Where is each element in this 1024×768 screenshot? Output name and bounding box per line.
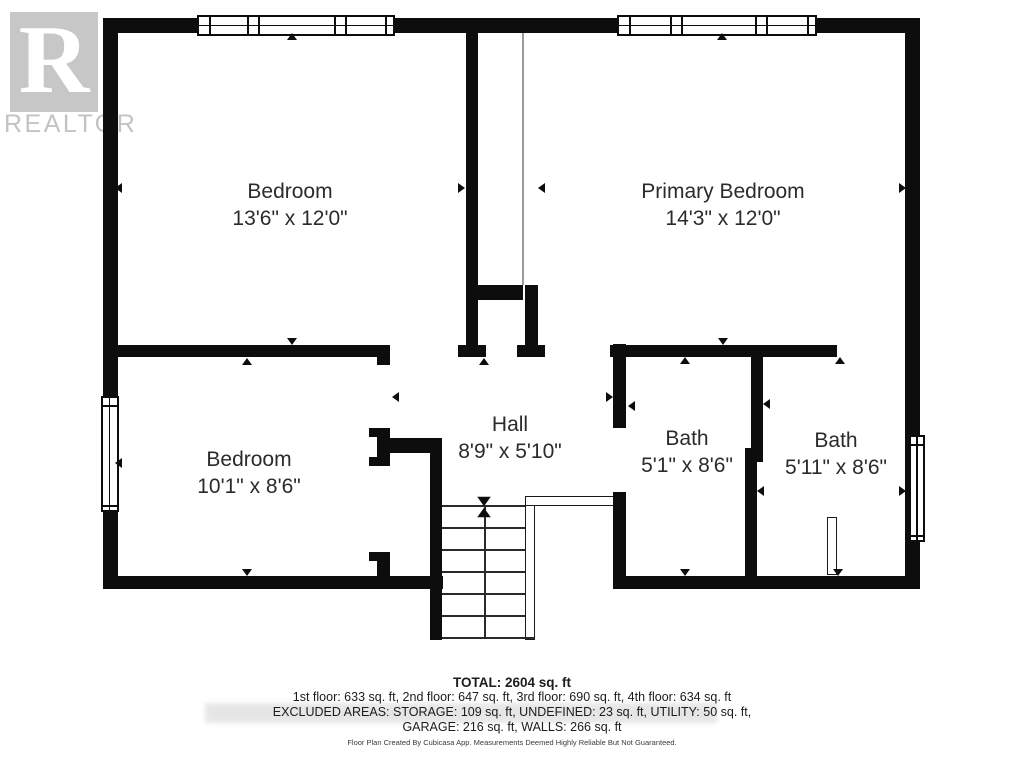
direction-marker: [115, 458, 122, 468]
room-name: Primary Bedroom: [641, 178, 804, 205]
room-label: Bedroom13'6" x 12'0": [232, 178, 347, 232]
summary-floors: 1st floor: 633 sq. ft, 2nd floor: 647 sq…: [0, 690, 1024, 705]
realtor-logo: R: [10, 12, 98, 112]
direction-marker: [833, 569, 843, 576]
room-label: Hall8'9" x 5'10": [458, 411, 562, 465]
room-label: Bath5'11" x 8'6": [785, 427, 887, 481]
direction-marker: [628, 401, 635, 411]
direction-marker: [899, 183, 906, 193]
wall-segment: [369, 457, 378, 466]
direction-marker: [757, 486, 764, 496]
direction-marker: [680, 569, 690, 576]
room-name: Bath: [641, 425, 733, 452]
area-summary: TOTAL: 2604 sq. ft 1st floor: 633 sq. ft…: [0, 675, 1024, 747]
wall-segment: [613, 576, 920, 589]
room-dimensions: 14'3" x 12'0": [641, 205, 804, 232]
stair-center-line: [484, 505, 486, 637]
floor-plan-canvas: Bedroom13'6" x 12'0"Primary Bedroom14'3"…: [0, 0, 1024, 768]
direction-marker: [717, 33, 727, 40]
direction-marker: [899, 486, 906, 496]
room-dimensions: 8'9" x 5'10": [458, 438, 562, 465]
direction-marker: [477, 496, 491, 505]
direction-marker: [538, 183, 545, 193]
room-label: Bath5'1" x 8'6": [641, 425, 733, 479]
wall-segment: [613, 344, 626, 428]
room-label: Primary Bedroom14'3" x 12'0": [641, 178, 804, 232]
window: [101, 396, 119, 512]
direction-marker: [287, 33, 297, 40]
room-name: Bedroom: [232, 178, 347, 205]
wall-segment: [458, 345, 486, 357]
stair-railing: [525, 496, 535, 640]
summary-total: TOTAL: 2604 sq. ft: [0, 675, 1024, 690]
room-dimensions: 5'11" x 8'6": [785, 454, 887, 481]
stair-tread: [442, 637, 535, 639]
wall-segment: [613, 492, 626, 588]
wall-segment: [517, 345, 545, 357]
wall-segment: [103, 345, 390, 357]
direction-marker: [115, 183, 122, 193]
direction-marker: [392, 392, 399, 402]
room-dimensions: 5'1" x 8'6": [641, 452, 733, 479]
wall-segment: [525, 285, 538, 345]
room-label: Bedroom10'1" x 8'6": [197, 446, 301, 500]
wall-segment: [745, 452, 757, 576]
direction-marker: [477, 507, 491, 516]
direction-marker: [479, 358, 489, 365]
direction-marker: [718, 338, 728, 345]
stair-railing: [525, 496, 618, 506]
room-name: Bath: [785, 427, 887, 454]
direction-marker: [242, 358, 252, 365]
door-leaf: [827, 517, 837, 575]
room-divider-line: [522, 33, 524, 285]
wall-segment: [610, 345, 837, 357]
room-dimensions: 10'1" x 8'6": [197, 473, 301, 500]
realtor-logo-letter: R: [19, 6, 90, 114]
window: [909, 435, 925, 542]
wall-segment: [377, 552, 390, 576]
room-name: Bedroom: [197, 446, 301, 473]
wall-segment: [751, 345, 763, 454]
wall-segment: [369, 428, 378, 437]
summary-disclaimer: Floor Plan Created By Cubicasa App. Meas…: [0, 738, 1024, 747]
direction-marker: [458, 183, 465, 193]
wall-segment: [103, 576, 443, 589]
direction-marker: [763, 399, 770, 409]
wall-segment: [377, 345, 390, 365]
wall-segment: [430, 438, 442, 640]
direction-marker: [835, 357, 845, 364]
direction-marker: [680, 357, 690, 364]
direction-marker: [606, 392, 613, 402]
wall-segment: [472, 285, 523, 300]
room-dimensions: 13'6" x 12'0": [232, 205, 347, 232]
summary-garage-walls: GARAGE: 216 sq. ft, WALLS: 266 sq. ft: [0, 720, 1024, 735]
direction-marker: [287, 338, 297, 345]
summary-excluded-areas: EXCLUDED AREAS: STORAGE: 109 sq. ft, UND…: [0, 705, 1024, 720]
room-name: Hall: [458, 411, 562, 438]
direction-marker: [242, 569, 252, 576]
